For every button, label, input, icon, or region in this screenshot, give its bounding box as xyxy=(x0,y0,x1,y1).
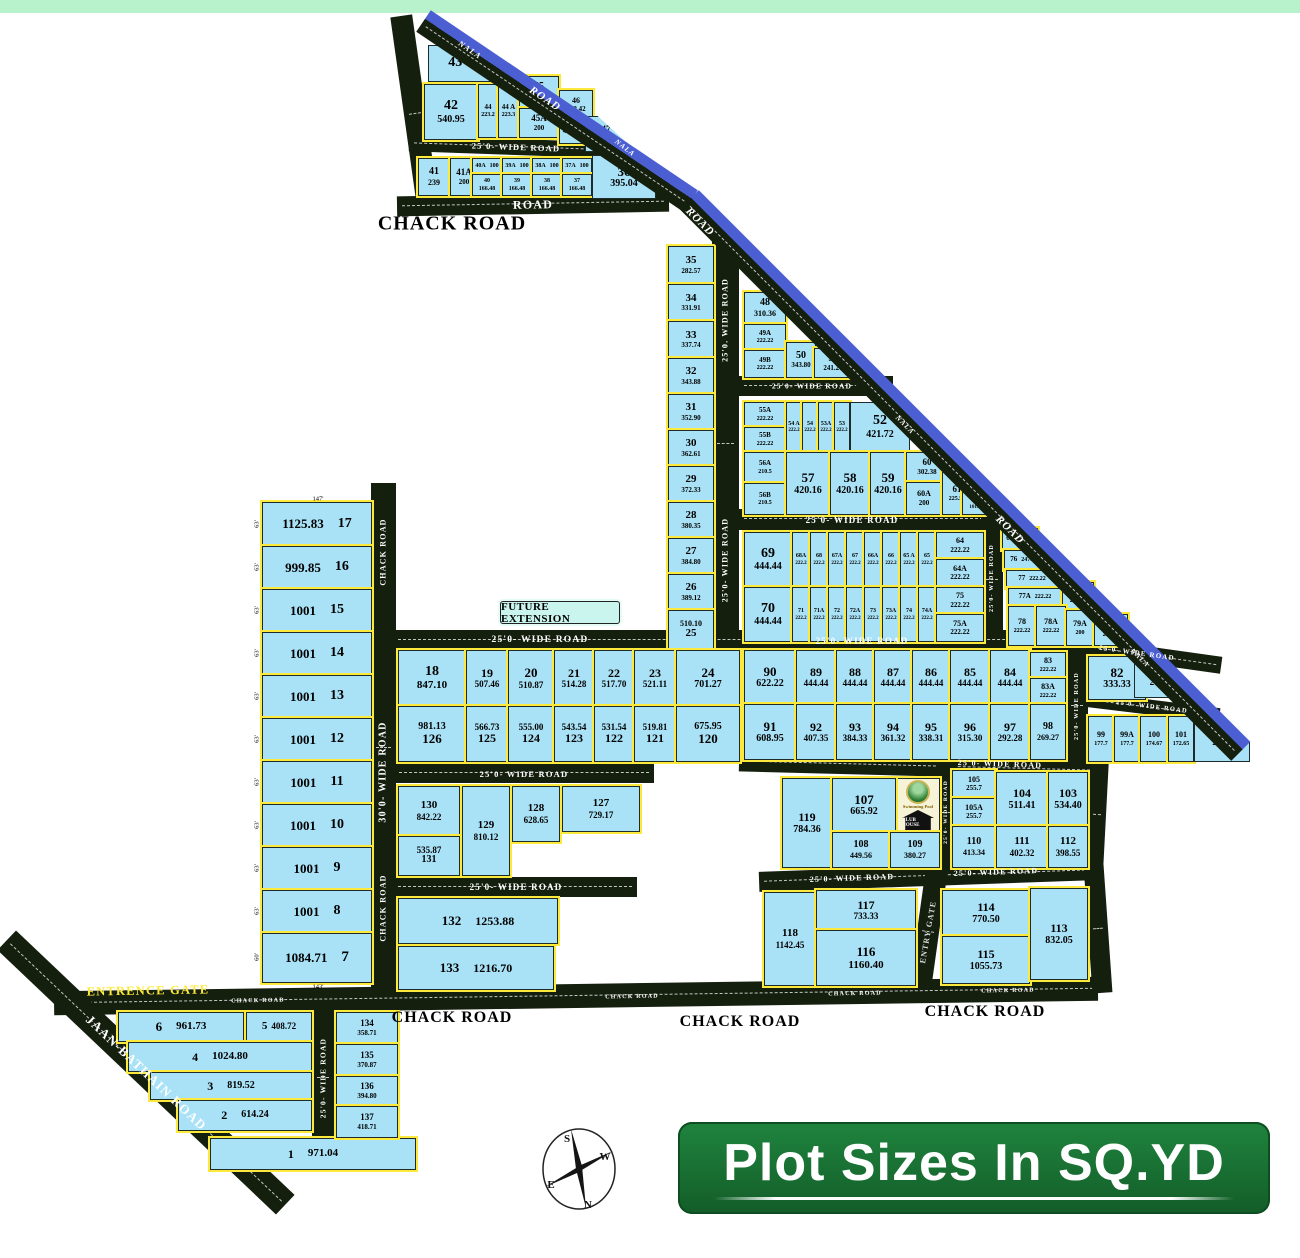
plot-13: 100113 xyxy=(262,675,372,718)
plot-number: 118 xyxy=(782,928,798,939)
plot-size: 389.12 xyxy=(681,595,700,602)
plot-37A: 37A100 xyxy=(562,158,592,174)
plot-size: 222.2 xyxy=(795,561,806,566)
plot-number: 111 xyxy=(1014,836,1029,847)
plot-number: 40 xyxy=(484,178,490,184)
plot-number: 87 xyxy=(887,666,899,678)
plot-number: 24 xyxy=(702,666,715,680)
plot-size: 514.28 xyxy=(562,680,587,689)
plot-54A: 54 A222.2 xyxy=(786,402,802,452)
plot-16: 999.8516 xyxy=(262,546,372,589)
plot-size: 444.44 xyxy=(881,679,906,688)
plot-size: 338.31 xyxy=(919,734,944,743)
swimming-pool-icon xyxy=(906,780,930,804)
plot-size: 540.95 xyxy=(437,115,465,125)
plot-number: 26 xyxy=(686,582,697,593)
road-label: 25'0- WIDE ROAD xyxy=(319,1038,328,1118)
plot-number: 105 xyxy=(968,776,980,784)
road-label: 25'0- WIDE ROAD xyxy=(480,769,569,779)
plot-77A: 77A222.22 xyxy=(1008,588,1062,606)
plot-number: 56B xyxy=(759,492,771,499)
plot-15: 100115 xyxy=(262,589,372,632)
plot-49A: 49A222.22 xyxy=(744,324,786,350)
plot-size: 614.24 xyxy=(241,1110,269,1120)
plot-size: 521.11 xyxy=(643,680,667,689)
plot-number: 52 xyxy=(873,414,887,429)
plot-33: 33337.74 xyxy=(668,321,714,358)
plot-number: 66A xyxy=(868,553,878,559)
plot-size: 421.72 xyxy=(866,430,894,440)
plot-121: 519.81121 xyxy=(634,706,676,762)
plot-number: 6 xyxy=(156,1020,163,1034)
plot-number: 16 xyxy=(335,560,349,575)
plot-size: 282.57 xyxy=(681,268,700,275)
plot-size: 380.35 xyxy=(681,523,700,530)
plot-number: 42 xyxy=(444,99,458,114)
plot-size: 302.38 xyxy=(917,469,936,476)
plot-137: 137418.71 xyxy=(336,1106,398,1138)
road-centerline xyxy=(409,112,421,115)
plot-number: 31 xyxy=(686,402,697,413)
plot-size: 222.2 xyxy=(903,561,914,566)
dimension-label: 63' xyxy=(254,692,261,700)
plot-size: 444.44 xyxy=(998,679,1023,688)
plot-86: 86444.44 xyxy=(912,650,950,704)
plot-number: 120 xyxy=(698,732,718,746)
plot-size: 222.2 xyxy=(836,428,847,433)
plot-size: 1160.40 xyxy=(848,960,883,971)
plot-size: 608.95 xyxy=(756,734,784,744)
plot-number: 128 xyxy=(528,803,545,814)
plot-number: 107 xyxy=(854,793,874,807)
plot-114: 114770.50 xyxy=(942,890,1030,936)
plot-11: 100111 xyxy=(262,761,372,804)
plot-map: FUTURE EXTENSION Swimming Pool CLUB HOUS… xyxy=(0,0,1300,1258)
plot-40: 40166.48 xyxy=(472,174,502,196)
plot-size: 174.67 xyxy=(1146,741,1163,747)
plot-number: 104 xyxy=(1013,787,1031,799)
plot-number: 19 xyxy=(481,667,493,679)
plot-size: 384.80 xyxy=(681,559,700,566)
plot-number: 39 xyxy=(514,178,520,184)
plot-110: 110413.34 xyxy=(952,826,996,868)
plot-size: 1001 xyxy=(294,862,320,876)
plot-size: 847.10 xyxy=(417,680,447,691)
plot-65: 65222.2 xyxy=(918,532,936,587)
dimension-label: 147' xyxy=(313,496,324,503)
plot-136: 136394.80 xyxy=(336,1076,398,1106)
plot-size: 444.44 xyxy=(958,679,983,688)
plot-number: 75A xyxy=(953,620,967,628)
plot-number: 117 xyxy=(857,899,874,911)
plot-109: 109380.27 xyxy=(890,832,940,868)
plot-66: 66222.2 xyxy=(882,532,900,587)
dimension-label: 63' xyxy=(254,606,261,614)
plot-size: 239 xyxy=(428,179,440,187)
plot-38A: 38A100 xyxy=(532,158,562,174)
plot-99A: 99A177.7 xyxy=(1114,716,1140,762)
plot-115: 1151055.73 xyxy=(942,936,1030,984)
plot-128: 128628.65 xyxy=(512,786,560,842)
plot-size: 971.04 xyxy=(308,1148,338,1159)
plot-117: 117733.33 xyxy=(816,890,916,930)
plot-size: 166.48 xyxy=(539,186,556,192)
plot-105A: 105A255.7 xyxy=(952,798,996,826)
plot-number: 109 xyxy=(908,840,923,850)
plot-number: 71 xyxy=(798,608,804,614)
road-label: 25'0- WIDE ROAD xyxy=(943,780,949,844)
road-label: 25'0- WIDE ROAD xyxy=(492,635,589,645)
road-label: 25'0- WIDE ROAD xyxy=(470,882,563,892)
swimming-pool-label: Swimming Pool xyxy=(903,804,933,809)
plot-number: 100 xyxy=(1148,731,1160,739)
plot-number: 59 xyxy=(882,471,895,485)
plot-132: 1321253.88 xyxy=(398,898,558,944)
plot-88: 88444.44 xyxy=(836,650,874,704)
plot-55A: 55A222.22 xyxy=(744,402,786,427)
plot-78A: 78A222.22 xyxy=(1036,606,1066,646)
plot-number: 79A xyxy=(1073,620,1087,628)
dimension-label: 63' xyxy=(254,907,261,915)
plot-number: 22 xyxy=(608,667,620,679)
plot-85: 85444.44 xyxy=(950,650,990,704)
plot-size: 100 xyxy=(580,163,589,169)
plot-31: 31352.90 xyxy=(668,394,714,430)
plot-number: 123 xyxy=(565,732,583,744)
plot-size: 200 xyxy=(1076,630,1085,636)
plot-30: 30362.61 xyxy=(668,430,714,466)
plot-120: 675.95120 xyxy=(676,706,740,762)
plot-number: 83 xyxy=(1044,657,1052,665)
plot-size: 222.22 xyxy=(757,338,774,344)
plot-size: 222.2 xyxy=(804,428,815,433)
plot-size: 222.2 xyxy=(831,561,842,566)
road-centerline xyxy=(717,443,734,444)
plot-74: 74222.2 xyxy=(900,587,918,642)
plot-size: 292.28 xyxy=(998,734,1023,743)
plot-111: 111402.32 xyxy=(996,826,1048,868)
plot-size: 222.2 xyxy=(903,616,914,621)
plot-number: 78 xyxy=(1018,618,1026,626)
road-label: CHACK ROAD xyxy=(981,988,1035,995)
plot-78: 78222.22 xyxy=(1008,606,1036,646)
plot-18: 18847.10 xyxy=(398,650,466,706)
plot-size: 510.87 xyxy=(519,681,544,690)
map-label: CHACK ROAD xyxy=(392,1009,513,1027)
plot-size: 222.22 xyxy=(950,547,969,554)
road-label: 25'0- WIDE ROAD xyxy=(989,544,995,612)
plot-105: 105255.7 xyxy=(952,770,996,798)
plot-number: 78A xyxy=(1044,618,1058,626)
plot-29: 29372.33 xyxy=(668,466,714,502)
plot-size: 384.33 xyxy=(843,734,868,743)
plot-number: 132 xyxy=(442,914,462,928)
plot-number: 23 xyxy=(649,667,661,679)
road-centerline xyxy=(1093,814,1101,815)
plot-number: 127 xyxy=(593,798,610,809)
plot-24: 24701.27 xyxy=(676,650,740,706)
plot-size: 1001 xyxy=(290,690,316,704)
plot-size: 222.22 xyxy=(1014,628,1031,634)
road-label: 25'0- WIDE ROAD xyxy=(816,636,909,646)
plot-size: 222.22 xyxy=(1040,667,1057,673)
plot-number: 116 xyxy=(857,945,876,959)
plot-size: 222.22 xyxy=(950,602,969,609)
plot-89: 89444.44 xyxy=(796,650,836,704)
plot-size: 770.50 xyxy=(972,915,1000,925)
plot-number: 93 xyxy=(849,721,861,733)
plot-103: 103534.40 xyxy=(1048,772,1088,826)
plot-122: 531.54122 xyxy=(594,706,634,762)
plot-size: 222.2 xyxy=(795,616,806,621)
plot-50: 50343.80 xyxy=(786,342,816,378)
plot-size: 222.2 xyxy=(788,428,799,433)
plot-number: 55B xyxy=(759,432,771,439)
plot-number: 119 xyxy=(798,811,815,823)
plot-size: 222.22 xyxy=(757,365,774,371)
plot-39A: 39A100 xyxy=(502,158,532,174)
plot-size: 223.3 xyxy=(502,112,516,118)
plot-60A: 60A200 xyxy=(906,482,942,515)
plot-number: 41A xyxy=(456,168,472,177)
plot-87: 87444.44 xyxy=(874,650,912,704)
dimension-label: 63' xyxy=(254,520,261,528)
plot-number: 70 xyxy=(761,602,775,617)
plot-size: 832.05 xyxy=(1045,936,1073,946)
dimension-label: 60' xyxy=(254,953,261,961)
plot-size: 315.30 xyxy=(958,734,983,743)
plot-number: 71A xyxy=(814,608,824,614)
plot-66A: 66A222.2 xyxy=(864,532,882,587)
plot-size: 222.2 xyxy=(849,616,860,621)
plot-number: 8 xyxy=(334,904,341,919)
plot-size: 819.52 xyxy=(227,1081,255,1091)
plot-12: 100112 xyxy=(262,718,372,761)
plot-5: 5408.72 xyxy=(246,1012,312,1042)
plot-4: 41024.80 xyxy=(128,1042,312,1072)
plot-number: 129 xyxy=(478,820,495,831)
plot-size: 222.2 xyxy=(885,561,896,566)
road-label: 25'0- WIDE ROAD xyxy=(806,515,899,525)
plot-83: 83222.22 xyxy=(1030,652,1066,678)
plot-72: 72222.2 xyxy=(828,587,846,642)
plot-size: 1001 xyxy=(290,733,316,747)
plot-70: 70444.44 xyxy=(744,587,792,642)
plot-number: 113 xyxy=(1050,922,1067,934)
plot-number: 72A xyxy=(850,608,860,614)
plot-size: 222.2 xyxy=(813,616,824,621)
plot-number: 50 xyxy=(796,351,806,361)
plot-number: 77A xyxy=(1019,593,1031,600)
plot-number: 83A xyxy=(1041,683,1055,691)
club-house-icon: CLUB HOUSE xyxy=(902,810,934,830)
plot-size: 222.2 xyxy=(867,561,878,566)
plot-size: 1253.88 xyxy=(475,915,514,927)
plot-size: 223.2 xyxy=(481,112,495,118)
plot-number: 86 xyxy=(925,666,937,678)
plot-26: 26389.12 xyxy=(668,574,714,610)
road-label: CHACK ROAD xyxy=(231,998,285,1005)
top-green-strip xyxy=(0,0,1300,13)
plot-number: 68A xyxy=(796,553,806,559)
plot-number: 68 xyxy=(816,553,822,559)
plot-size: 517.70 xyxy=(602,680,627,689)
map-label: CHACK ROAD xyxy=(378,213,526,236)
plot-19: 19507.46 xyxy=(466,650,508,706)
plot-number: 97 xyxy=(1004,721,1016,733)
plot-64A: 64A222.22 xyxy=(936,559,984,587)
plot-number: 105A xyxy=(965,804,983,812)
plot-53: 53222.2 xyxy=(834,402,850,452)
plot-size: 398.55 xyxy=(1056,849,1081,858)
road-label: CHACK ROAD xyxy=(605,994,659,1001)
plot-number: 37 xyxy=(574,178,580,184)
plot-size: 420.16 xyxy=(874,486,902,496)
plot-number: 11 xyxy=(330,775,343,790)
dimension-label: 143' xyxy=(313,984,324,991)
plot-size: 407.35 xyxy=(804,734,829,743)
plot-107: 107665.92 xyxy=(832,778,896,832)
plot-size: 331.91 xyxy=(681,305,700,312)
plot-number: 135 xyxy=(360,1051,374,1060)
plot-54: 54222.2 xyxy=(802,402,818,452)
plot-73A: 73A222.2 xyxy=(882,587,900,642)
plot-75A: 75A222.22 xyxy=(936,614,984,642)
plot-57: 57420.16 xyxy=(786,452,830,515)
map-label: CHACK ROAD xyxy=(925,1003,1046,1021)
plot-number: 49A xyxy=(759,330,771,337)
plot-number: 130 xyxy=(421,800,438,811)
plot-17: 1125.8317 xyxy=(262,502,372,546)
plot-number: 110 xyxy=(967,837,981,847)
plot-number: 15 xyxy=(330,603,344,618)
plot-39: 39166.48 xyxy=(502,174,532,196)
plot-41: 41239 xyxy=(418,158,450,196)
map-label: CHACK ROAD xyxy=(680,1013,801,1031)
plot-size: 408.72 xyxy=(271,1022,296,1031)
plot-size: 444.44 xyxy=(804,679,829,688)
plot-number: 25 xyxy=(686,628,697,639)
plot-number: 88 xyxy=(849,666,861,678)
plot-size: 534.40 xyxy=(1054,801,1082,811)
plot-number: 99A xyxy=(1120,731,1134,739)
plot-32: 32343.88 xyxy=(668,358,714,394)
plot-number: 2 xyxy=(221,1109,227,1121)
plot-size: 310.36 xyxy=(754,310,776,318)
plot-number: 74A xyxy=(922,608,932,614)
plot-58: 58420.16 xyxy=(830,452,870,515)
plot-size: 222.22 xyxy=(1040,693,1057,699)
plot-size: 200 xyxy=(534,125,545,132)
plot-number: 29 xyxy=(686,474,697,485)
road-label: CHACK ROAD xyxy=(828,991,882,998)
plot-number: 125 xyxy=(478,732,496,744)
plot-size: 352.90 xyxy=(681,415,700,422)
plot-size: 177.7 xyxy=(1094,741,1108,747)
plot-size: 100 xyxy=(490,163,499,169)
plot-65A: 65 A222.2 xyxy=(900,532,918,587)
plot-number: 57 xyxy=(802,471,815,485)
plot-number: 53 xyxy=(839,421,845,427)
plot-8: 10018 xyxy=(262,890,372,933)
plot-34: 34331.91 xyxy=(668,284,714,321)
plot-126: 981.13126 xyxy=(398,706,466,762)
plot-67: 67222.2 xyxy=(846,532,864,587)
dimension-label: 63' xyxy=(254,649,261,657)
club-house-plot: Swimming Pool CLUB HOUSE xyxy=(896,778,940,832)
plot-53A: 53A222.2 xyxy=(818,402,834,452)
plot-size: 1001 xyxy=(290,776,316,790)
compass-south: S xyxy=(564,1133,570,1145)
plot-number: 96 xyxy=(964,721,976,733)
plot-38: 38166.48 xyxy=(532,174,562,196)
future-extension-label: FUTURE EXTENSION xyxy=(500,601,620,624)
plot-size: 733.33 xyxy=(854,912,879,921)
plot-number: 67 xyxy=(852,553,858,559)
plot-83A: 83A222.22 xyxy=(1030,678,1066,704)
plot-size: 395.04 xyxy=(610,179,638,189)
plot-number: 4 xyxy=(192,1051,198,1063)
plot-number: 91 xyxy=(764,720,777,734)
plot-size: 511.41 xyxy=(1009,801,1036,811)
title-underline xyxy=(714,1197,1235,1200)
plot-number: 89 xyxy=(810,666,822,678)
road-label: 25'0. WIDE ROAD xyxy=(721,278,730,362)
plot-number: 60A xyxy=(917,490,931,498)
plot-size: 1001 xyxy=(290,647,316,661)
plot-size: 222.22 xyxy=(1029,576,1046,582)
plot-123: 543.54123 xyxy=(554,706,594,762)
plot-size: 337.74 xyxy=(681,342,700,349)
road-label: ROAD xyxy=(513,197,553,213)
plot-124: 555.00124 xyxy=(508,706,554,762)
plot-number: 30 xyxy=(686,438,697,449)
plot-size: 222.2 xyxy=(849,561,860,566)
plot-number: 17 xyxy=(338,517,352,532)
plot-number: 54 xyxy=(807,421,813,427)
plot-number: 41 xyxy=(429,167,439,177)
plot-number: 73 xyxy=(870,608,876,614)
plot-size: 222.22 xyxy=(950,629,969,636)
plot-number: 44 A xyxy=(502,104,515,111)
plot-number: 39A xyxy=(505,163,515,169)
plot-64: 64222.22 xyxy=(936,532,984,559)
plot-number: 69 xyxy=(761,547,775,562)
plot-6: 6961.73 xyxy=(118,1012,244,1042)
plot-98: 98269.27 xyxy=(1030,704,1066,760)
plot-number: 115 xyxy=(977,948,994,960)
plot-56B: 56B210.5 xyxy=(744,483,786,515)
plot-size: 380.27 xyxy=(904,852,926,860)
plot-1: 1971.04 xyxy=(210,1138,416,1170)
plot-number: 65 xyxy=(924,553,930,559)
plot-size: 622.22 xyxy=(756,679,784,689)
plot-131: 535.87131 xyxy=(398,836,460,876)
plot-118: 1181142.45 xyxy=(764,892,816,986)
title-banner: Plot Sizes In SQ.YD xyxy=(678,1122,1270,1214)
plot-74A: 74A222.2 xyxy=(918,587,936,642)
plot-116: 1161160.40 xyxy=(816,930,916,986)
plot-size: 810.12 xyxy=(474,833,499,842)
plot-number: 82 xyxy=(1111,666,1124,680)
plot-108: 108449.56 xyxy=(832,832,890,868)
plot-number: 37A xyxy=(565,163,575,169)
plot-number: 84 xyxy=(1004,666,1016,678)
plot-size: 418.71 xyxy=(357,1124,376,1131)
plot-14: 100114 xyxy=(262,632,372,675)
plot-92: 92407.35 xyxy=(796,704,836,760)
plot-71: 71222.2 xyxy=(792,587,810,642)
